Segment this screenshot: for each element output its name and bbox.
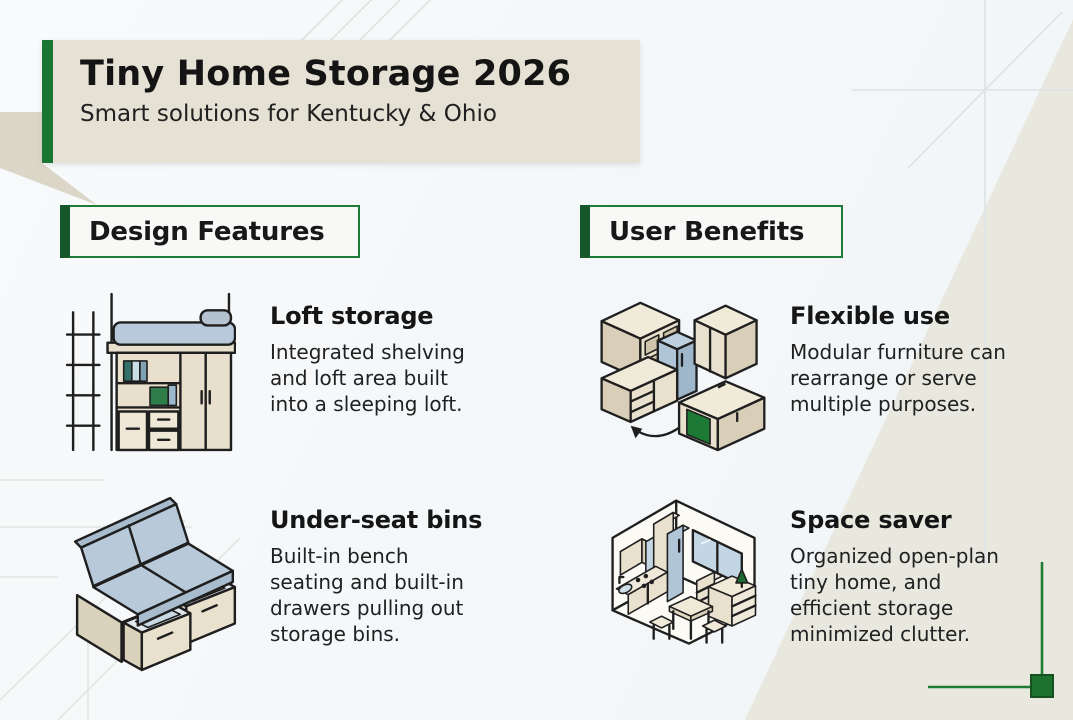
section-heading-user-benefits: User Benefits bbox=[580, 205, 843, 258]
item-title: Under-seat bins bbox=[270, 506, 515, 534]
benefit-space-saver: Space saver Organized open-plan tiny hom… bbox=[790, 506, 1050, 647]
section-heading-design-features: Design Features bbox=[60, 205, 360, 258]
page-subtitle: Smart solutions for Kentucky & Ohio bbox=[80, 101, 640, 127]
item-title: Flexible use bbox=[790, 302, 1045, 330]
benefit-flexible-use: Flexible use Modular furniture can rearr… bbox=[790, 302, 1045, 417]
item-description: Organized open-plan tiny home, and effic… bbox=[790, 543, 1050, 647]
tiny-home-floorplan-icon bbox=[593, 488, 779, 674]
feature-loft-storage: Loft storage Integrated shelving and lof… bbox=[270, 302, 510, 417]
page-title: Tiny Home Storage 2026 bbox=[80, 55, 640, 94]
modular-furniture-icon bbox=[590, 286, 774, 466]
section-title: User Benefits bbox=[582, 217, 804, 247]
item-description: Modular furniture can rearrange or serve… bbox=[790, 339, 1045, 417]
section-title: Design Features bbox=[62, 217, 325, 247]
item-description: Integrated shelving and loft area built … bbox=[270, 339, 510, 417]
bench-storage-drawers-icon bbox=[56, 490, 260, 676]
infographic-canvas: Tiny Home Storage 2026 Smart solutions f… bbox=[0, 0, 1073, 720]
loft-bed-icon bbox=[60, 286, 236, 458]
green-accent-bar bbox=[60, 205, 70, 258]
item-title: Space saver bbox=[790, 506, 1050, 534]
feature-under-seat-bins: Under-seat bins Built-in bench seating a… bbox=[270, 506, 515, 647]
item-title: Loft storage bbox=[270, 302, 510, 330]
header-banner: Tiny Home Storage 2026 Smart solutions f… bbox=[42, 40, 640, 163]
item-description: Built-in bench seating and built-in draw… bbox=[270, 543, 515, 647]
green-accent-bar bbox=[580, 205, 590, 258]
